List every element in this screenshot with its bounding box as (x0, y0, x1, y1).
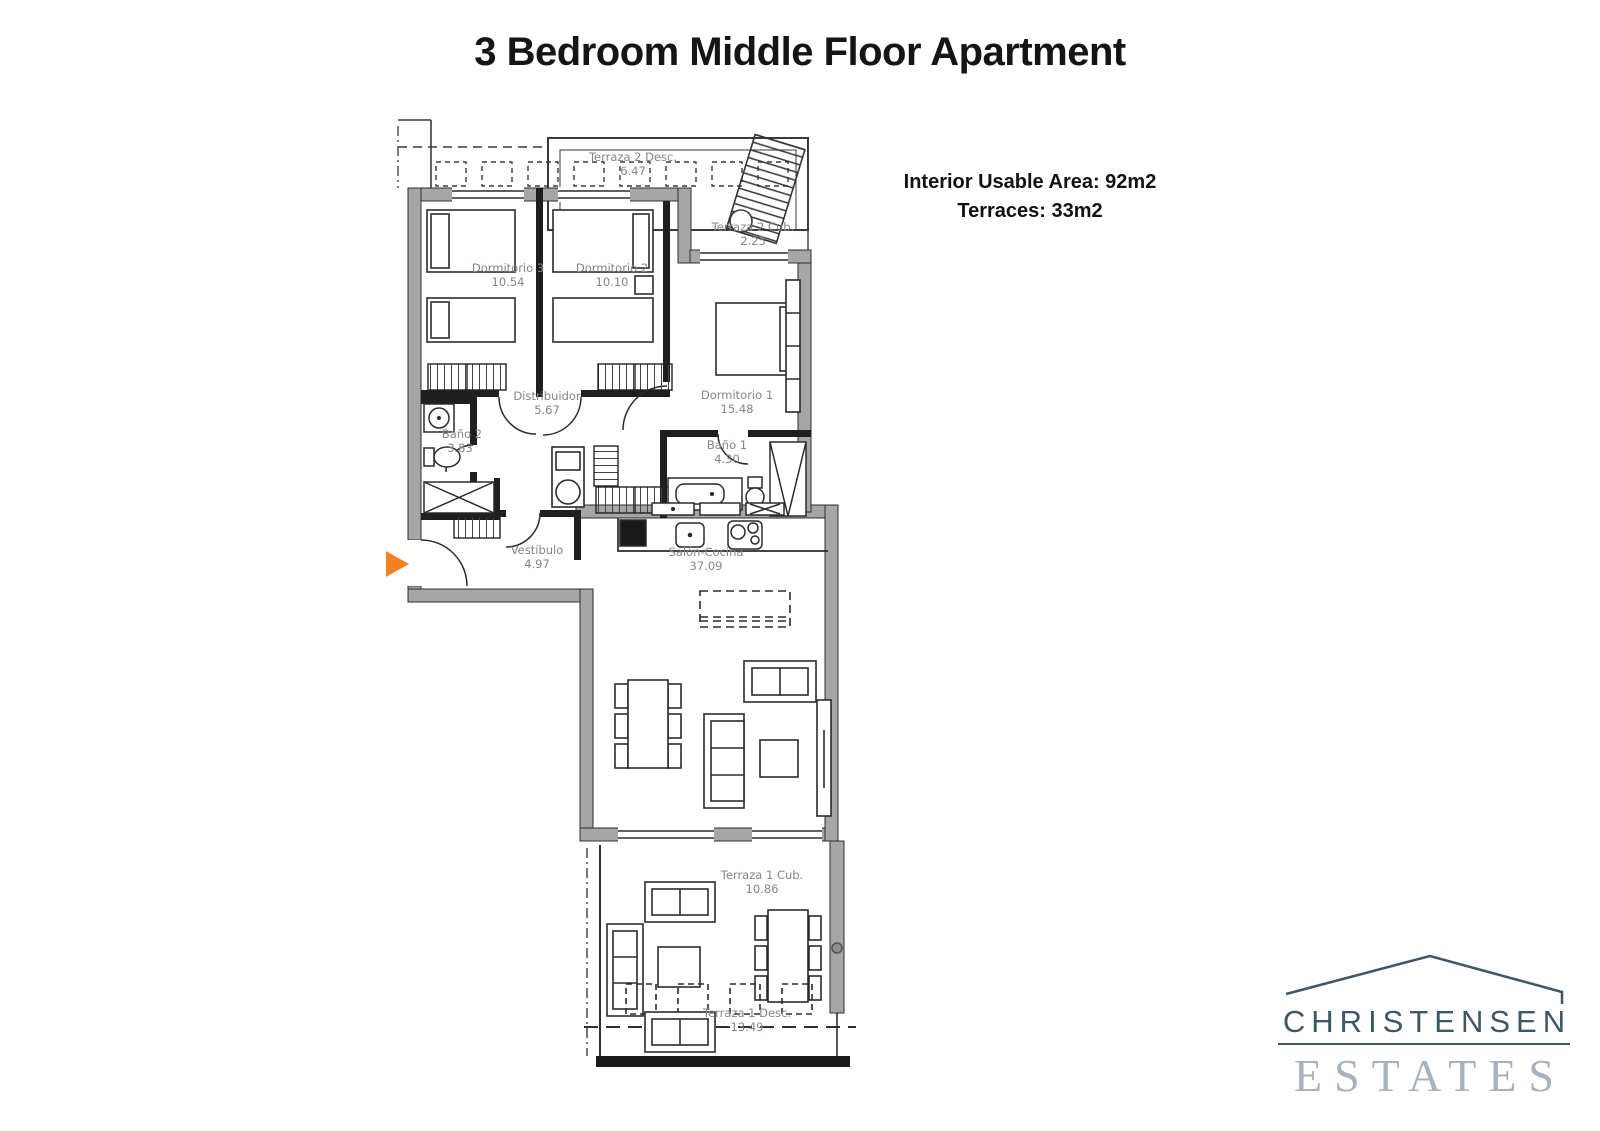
label-terraza1-cub: Terraza 1 Cub.10.86 (720, 868, 803, 896)
roof-icon (1278, 948, 1570, 1004)
label-bano1: Baño 14.30 (707, 438, 747, 466)
utility-column (552, 447, 584, 507)
label-vestibulo: Vestíbulo4.97 (511, 543, 564, 571)
label-dormitorio3: Dormitorio 310.54 (472, 261, 544, 289)
terrace-2-posts (436, 162, 788, 186)
label-terraza2-cub: Terraza 2 Cub.2.25 (711, 220, 794, 248)
label-dormitorio1: Dormitorio 115.48 (701, 388, 773, 416)
living-room-furniture (615, 591, 831, 816)
label-terraza2-desc: Terraza 2 Desc.6.47 (588, 150, 677, 178)
brand-subname: ESTATES (1282, 1053, 1566, 1099)
brand-name: CHRISTENSEN (1277, 1006, 1571, 1037)
entrance-arrow-icon (386, 551, 409, 577)
brand-divider (1278, 1043, 1570, 1045)
label-salon-cocina: Salón-Cocina37.09 (669, 545, 744, 573)
brand-logo: CHRISTENSEN ESTATES (1278, 948, 1570, 1099)
flyer-page: 3 Bedroom Middle Floor Apartment Interio… (0, 0, 1600, 1131)
label-distribuidor: Distribuidor5.67 (513, 389, 581, 417)
